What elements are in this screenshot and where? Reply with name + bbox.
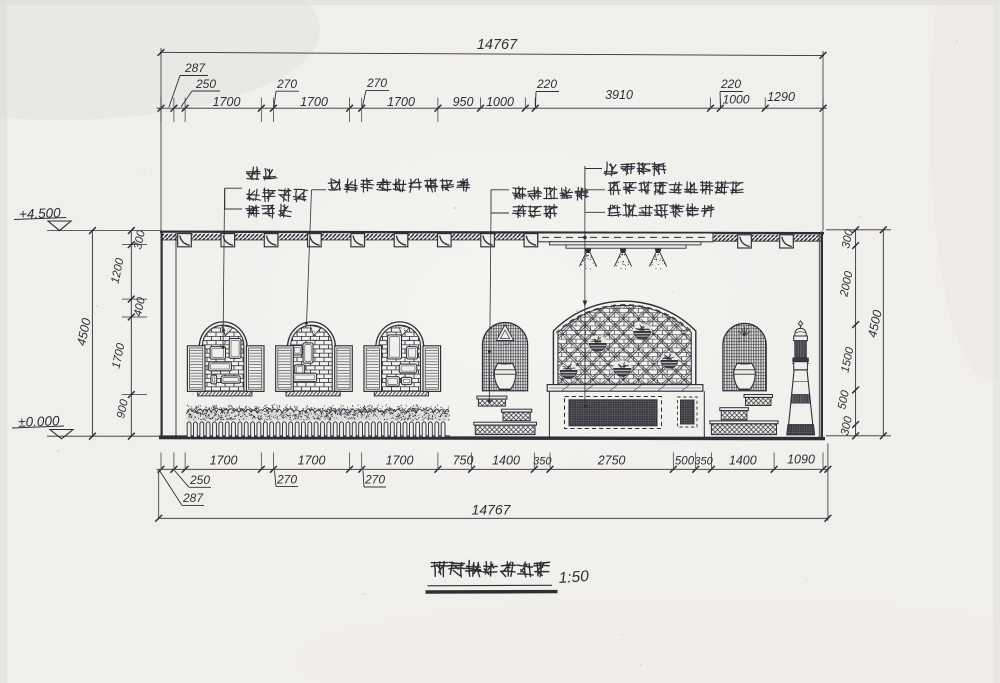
svg-text:250: 250: [189, 473, 210, 487]
svg-text:287: 287: [182, 491, 204, 505]
svg-text:250: 250: [195, 77, 216, 91]
svg-text:1700: 1700: [300, 95, 328, 109]
svg-text:1700: 1700: [386, 454, 414, 468]
svg-text:3910: 3910: [605, 88, 633, 102]
svg-text:750: 750: [453, 454, 474, 468]
svg-text:350: 350: [533, 456, 552, 468]
svg-text:1400: 1400: [492, 454, 520, 468]
svg-text:270: 270: [276, 473, 297, 487]
svg-text:270: 270: [366, 76, 387, 90]
svg-text:270: 270: [364, 473, 385, 487]
svg-text:1090: 1090: [787, 453, 815, 467]
svg-text:1700: 1700: [210, 454, 238, 468]
svg-text:500: 500: [675, 456, 695, 468]
svg-text:1000: 1000: [486, 95, 514, 109]
svg-text:220: 220: [720, 77, 741, 91]
svg-text:14767: 14767: [477, 37, 518, 53]
svg-text:1290: 1290: [767, 90, 795, 104]
svg-text:950: 950: [453, 95, 474, 109]
svg-text:270: 270: [276, 77, 297, 91]
svg-text:1400: 1400: [729, 454, 757, 468]
svg-text:220: 220: [536, 77, 557, 91]
svg-text:350: 350: [694, 456, 713, 468]
svg-text:1700: 1700: [387, 95, 415, 109]
svg-text:1700: 1700: [298, 454, 326, 468]
svg-text:1:50: 1:50: [558, 568, 590, 587]
svg-text:1700: 1700: [213, 95, 241, 109]
svg-text:287: 287: [184, 61, 206, 75]
svg-text:1000: 1000: [722, 93, 749, 107]
svg-text:2750: 2750: [597, 454, 626, 468]
svg-text:14767: 14767: [472, 502, 512, 518]
